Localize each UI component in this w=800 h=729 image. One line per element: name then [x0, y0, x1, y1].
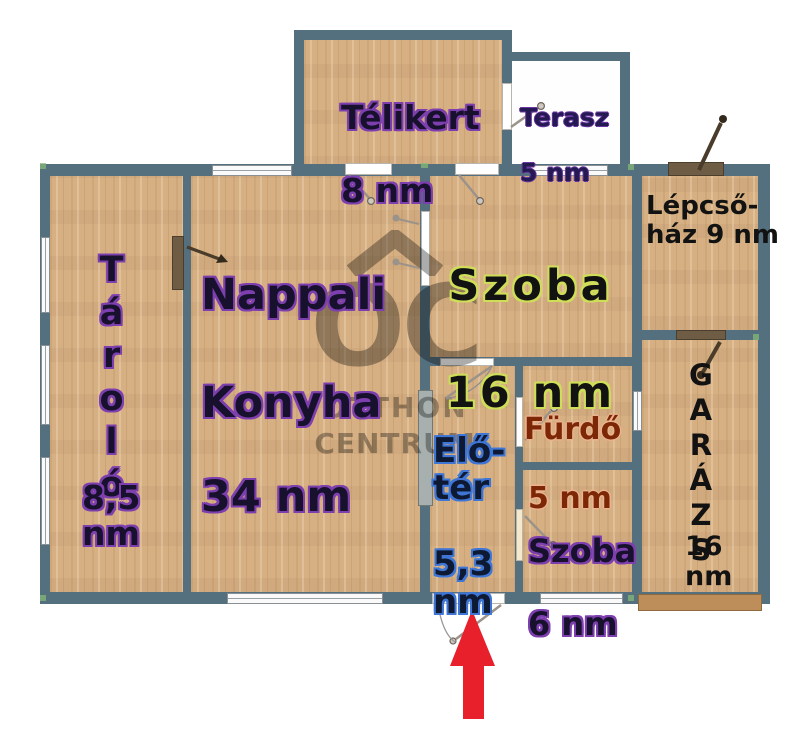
eloter-name: Elő- tér	[433, 433, 505, 508]
room-label-lepcsohaz: Lépcső- ház 9 nm	[646, 192, 779, 250]
room-label-eloter: Elő- tér 5,3 nm	[433, 394, 505, 660]
eloter-area: 5,3 nm	[433, 546, 505, 621]
telikert-area: 8 nm	[341, 173, 480, 209]
telikert-name: Télikert	[341, 100, 480, 136]
room-label-garazs: GARÁZS	[684, 358, 716, 538]
room-label-tarolo: Tároló	[92, 250, 131, 490]
room-label-szoba6: Szoba 6 nm	[528, 496, 636, 680]
room-label-nappali-area: 34 nm	[201, 474, 351, 521]
szoba6-area: 6 nm	[528, 606, 636, 643]
szoba16-name: Szoba	[430, 260, 632, 314]
floor-plan-canvas: OC OTTHON CENTRUM Télikert 8 nm Terasz 5…	[0, 0, 800, 729]
terasz-name: Terasz	[520, 104, 609, 132]
furdo-name: Fürdő	[524, 413, 621, 448]
room-label-nappali-line1: Nappali	[201, 272, 386, 319]
room-label-nappali-line2: Konyha	[201, 380, 381, 427]
room-label-terasz: Terasz 5 nm	[520, 76, 609, 214]
room-label-garazs-area: 16 nm	[685, 532, 737, 591]
terasz-area: 5 nm	[520, 159, 609, 187]
szoba6-name: Szoba	[528, 533, 636, 570]
room-label-tarolo-area: 8,5 nm	[82, 480, 158, 553]
